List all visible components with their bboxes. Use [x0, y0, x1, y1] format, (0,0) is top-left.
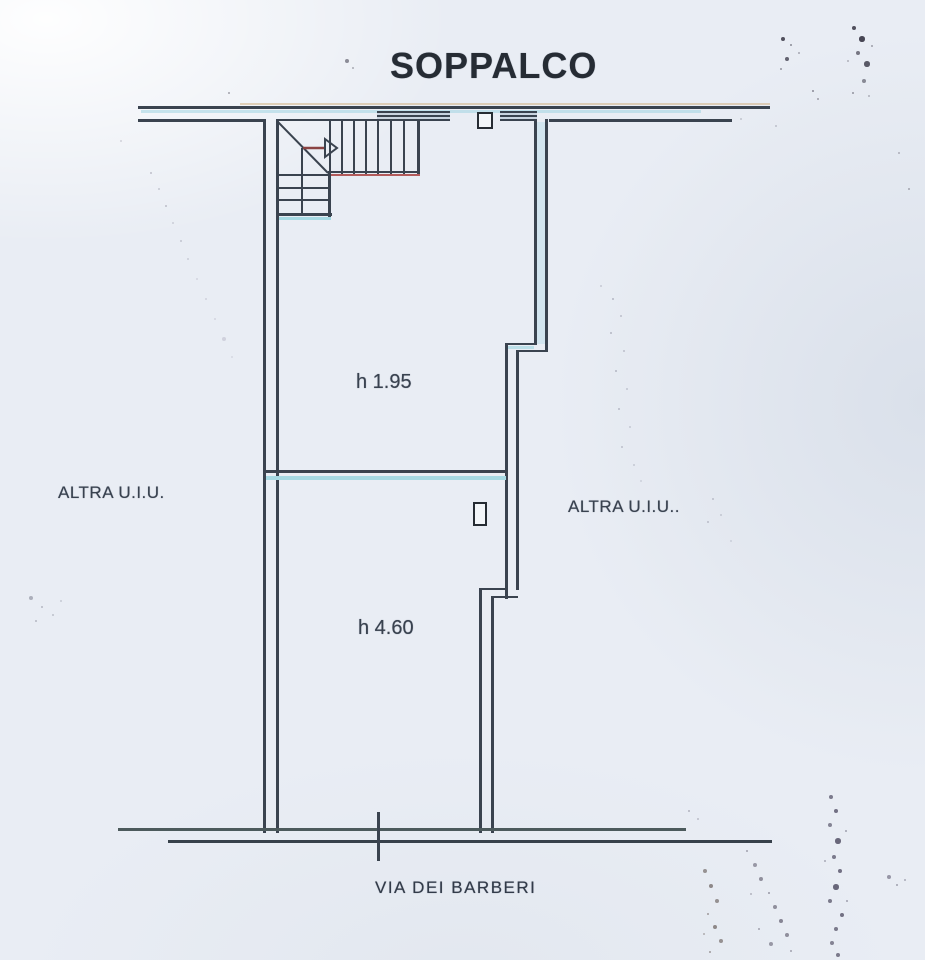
- arrow-right-icon: [325, 139, 337, 157]
- door-symbol-middle: [473, 502, 487, 526]
- adjacent-unit-label-right: ALTRA U.I.U..: [568, 497, 680, 517]
- right-wall-lower-inner: [491, 596, 494, 833]
- street-boundary-line-lower: [168, 840, 772, 843]
- floor-plan-drawing: h 1.95 ALTRA U.I.U. ALTRA U.I.U.. h 4.60…: [0, 0, 925, 960]
- mezzanine-divider-highlight: [266, 476, 506, 480]
- right-wall-upper-inner: [534, 119, 537, 345]
- right-wall-jog1-top: [505, 343, 537, 345]
- right-wall-cyan-fill: [537, 122, 545, 344]
- right-wall-jog2-top: [479, 588, 508, 590]
- street-label: VIA DEI BARBERI: [375, 878, 536, 898]
- right-wall-jog1-bottom: [516, 350, 548, 352]
- height-label-upper: h 1.95: [356, 371, 412, 394]
- mezzanine-divider-line: [266, 470, 508, 473]
- height-label-lower: h 4.60: [358, 617, 414, 640]
- adjacent-unit-label-left: ALTRA U.I.U.: [58, 483, 165, 503]
- right-wall-mid-inner: [516, 350, 519, 590]
- right-wall-jog2-bottom: [491, 596, 518, 598]
- scan-noise-bottom-right: [0, 0, 2, 2]
- right-wall-lower-outer: [479, 588, 482, 833]
- scanned-floor-plan: SOPPALCO: [0, 0, 925, 960]
- stair-winder-and-arrow: [0, 0, 925, 960]
- street-boundary-line-upper: [118, 828, 686, 831]
- right-wall-upper-outer: [545, 119, 548, 352]
- street-access-tick: [377, 812, 380, 861]
- jog1-cyan-tint: [508, 346, 534, 349]
